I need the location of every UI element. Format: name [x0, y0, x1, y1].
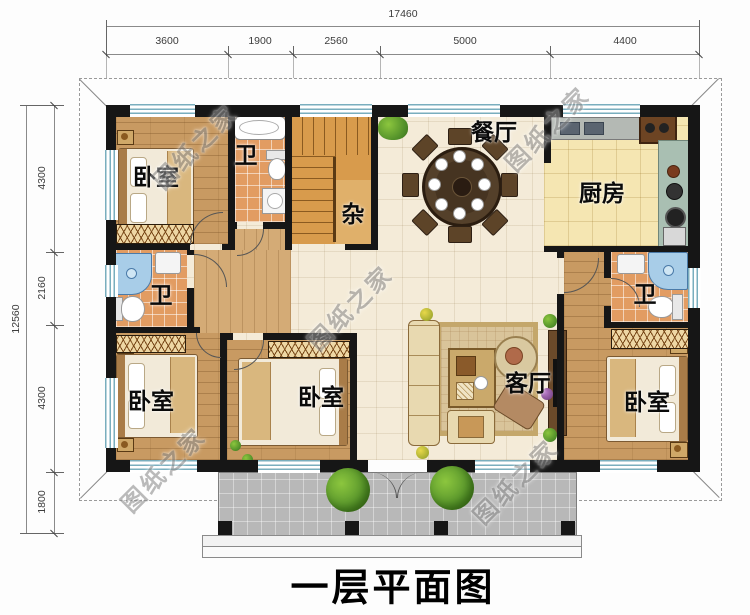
kitchen-counter-right — [658, 140, 690, 248]
nightstand — [117, 438, 134, 452]
wardrobe-top-left — [116, 224, 194, 244]
wall-int — [227, 333, 233, 340]
porch-bush — [326, 468, 370, 512]
bed-throw — [242, 362, 271, 440]
dim-tick — [20, 105, 64, 106]
wall-ext-right — [688, 105, 700, 268]
dim-left-seg-3: 4300 — [36, 386, 48, 409]
wall-int — [263, 222, 292, 229]
window-bedroom-bottom-middle — [258, 460, 320, 473]
label-storage: 杂 — [342, 195, 365, 229]
wall-ext-left — [106, 448, 116, 472]
dim-ext — [293, 56, 294, 78]
wall-ext-bottom — [197, 460, 258, 472]
sofa-main — [408, 320, 440, 446]
window-left-bedroom-bottom — [105, 378, 118, 448]
dining-chair — [501, 173, 518, 197]
kitchen-sink-basin — [584, 122, 604, 135]
dim-left-total: 12560 — [10, 304, 22, 333]
stair-landing — [335, 155, 372, 180]
coffee-table-plate — [474, 376, 488, 390]
kitchen-washer — [663, 227, 686, 246]
potted-plant — [230, 440, 241, 451]
window-bedroom-top-left — [130, 104, 195, 117]
wall-int — [285, 117, 292, 250]
dim-left-seg-4: 1800 — [36, 490, 48, 513]
shower-drain — [663, 265, 674, 276]
nightstand — [670, 442, 688, 458]
wall-int — [371, 117, 378, 250]
potted-plant — [543, 314, 557, 328]
plan-title: 一层平面图 — [290, 557, 495, 612]
window-left-bedroom-top — [105, 150, 118, 220]
dim-top-seg-2: 1900 — [248, 35, 271, 47]
sink-basin — [267, 193, 283, 209]
wall-int — [187, 250, 194, 255]
wall-int — [106, 327, 200, 333]
label-bath-left: 卫 — [150, 276, 173, 310]
wall-ext-left — [106, 220, 116, 265]
wall-int — [345, 244, 378, 250]
window-left-bath — [105, 265, 118, 297]
wall-ext-top — [372, 105, 408, 117]
stair-flight-top — [292, 117, 371, 155]
bathtub-basin — [239, 120, 279, 135]
wall-int — [604, 322, 700, 328]
dim-ext — [550, 56, 551, 78]
porch-column — [345, 521, 359, 535]
wall-int — [228, 222, 237, 229]
dim-top-seg-line — [106, 54, 700, 55]
wall-int — [350, 333, 357, 462]
label-bedroom-bottom-left: 卧室 — [128, 382, 174, 416]
wall-int — [604, 306, 611, 322]
potted-plant — [416, 446, 429, 459]
place-setting — [471, 198, 484, 211]
bed-headboard — [117, 355, 125, 437]
sink-right-bath — [617, 254, 645, 274]
wall-int — [604, 252, 611, 278]
dim-top-seg-5: 4400 — [613, 35, 636, 47]
coffee-table-tray — [456, 356, 476, 376]
wall-int — [557, 250, 564, 258]
wall-int — [106, 244, 190, 250]
dining-chair — [402, 173, 419, 197]
dim-ext — [380, 56, 381, 78]
dim-ext — [699, 56, 700, 78]
wall-ext-left — [106, 297, 116, 378]
place-setting — [453, 207, 466, 220]
dim-left-seg-1: 4300 — [36, 166, 48, 189]
wardrobe-bottom-left — [116, 335, 186, 353]
bed-headboard — [679, 357, 687, 441]
wall-ext-left — [106, 105, 116, 150]
kitchen-round-sink — [665, 207, 686, 228]
dim-ext — [106, 56, 107, 78]
dining-chair — [448, 128, 472, 145]
place-setting — [471, 158, 484, 171]
kitchen-bowl — [667, 165, 680, 178]
toilet-top-bath-bowl — [268, 158, 286, 180]
dim-left-seg-2: 2160 — [36, 276, 48, 299]
dim-top-seg-1: 3600 — [155, 35, 178, 47]
bench-seat — [447, 410, 495, 444]
place-setting — [435, 198, 448, 211]
stove-burner — [659, 123, 669, 133]
dim-top-total: 17460 — [388, 8, 417, 20]
wall-ext-right — [688, 308, 700, 472]
porch-column — [434, 521, 448, 535]
bench-cushion — [458, 416, 484, 438]
bed-headboard — [119, 149, 127, 231]
label-bath-top: 卫 — [235, 136, 258, 170]
porch-column — [218, 521, 232, 535]
window-right-bath — [688, 268, 701, 308]
porch-column — [561, 521, 575, 535]
dim-left-seg-line — [54, 105, 55, 533]
wall-int — [557, 294, 564, 462]
wall-int — [222, 244, 235, 250]
floor-plan-canvas: 17460 3600 1900 2560 5000 4400 12560 430… — [0, 0, 750, 615]
stair-handrail — [333, 157, 336, 242]
dim-top-seg-3: 2560 — [324, 35, 347, 47]
dim-top-seg-4: 5000 — [453, 35, 476, 47]
dining-plant — [378, 116, 408, 140]
label-living: 客厅 — [505, 364, 551, 398]
nightstand — [117, 130, 134, 145]
dining-chair — [448, 226, 472, 243]
kitchen-wok-burner — [666, 183, 683, 200]
place-setting — [478, 178, 491, 191]
coffee-table-basket — [456, 382, 474, 400]
shower-left-bath — [112, 253, 152, 295]
toilet-right-bath — [672, 294, 683, 320]
label-bedroom-bottom-middle: 卧室 — [298, 378, 344, 412]
sink-left-bath — [155, 252, 181, 274]
dim-left-total-line — [26, 105, 27, 533]
place-setting — [453, 150, 466, 163]
wardrobe-bottom-right — [611, 329, 690, 349]
label-bath-right: 卫 — [634, 275, 657, 309]
dim-ext — [228, 56, 229, 78]
label-kitchen: 厨房 — [579, 174, 625, 208]
wall-int — [544, 246, 688, 252]
toilet-left-bath-bowl — [121, 296, 145, 322]
coffee-table — [448, 348, 496, 408]
potted-plant — [420, 308, 433, 321]
label-bedroom-bottom-right: 卧室 — [624, 383, 670, 417]
stove-burner — [645, 123, 655, 133]
dining-table-center — [452, 177, 472, 197]
place-setting — [435, 158, 448, 171]
bed-pillow — [130, 193, 147, 223]
window-stairs — [300, 104, 372, 117]
dim-tick — [20, 533, 64, 534]
place-setting — [428, 178, 441, 191]
side-table-decor — [505, 347, 523, 365]
window-bedroom-bottom-right — [600, 460, 657, 473]
wall-int — [220, 333, 227, 462]
stair-flight-left — [292, 155, 335, 244]
shower-drain — [126, 268, 137, 279]
dim-top-total-line — [106, 26, 700, 27]
